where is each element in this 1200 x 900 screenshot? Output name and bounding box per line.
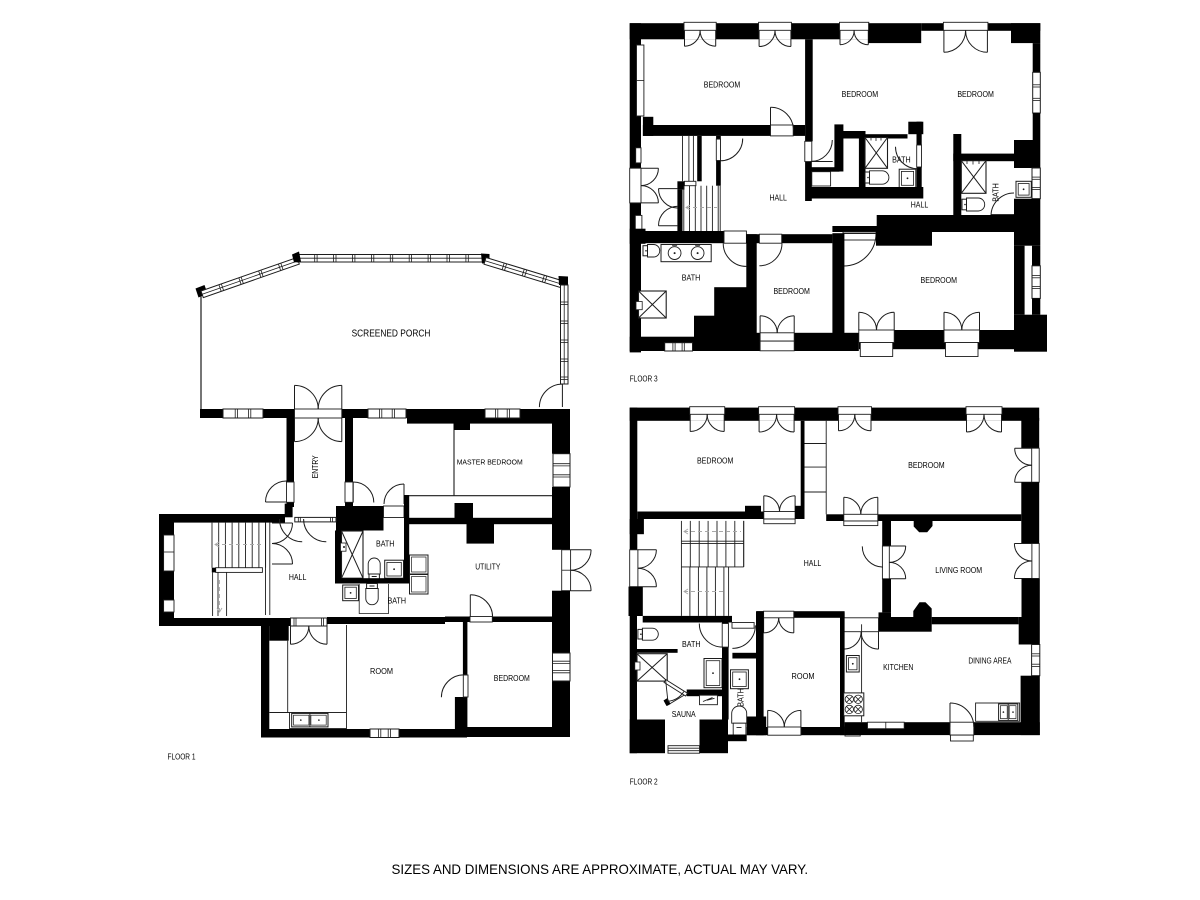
svg-text:ROOM: ROOM xyxy=(792,672,815,681)
svg-text:FLOOR 2: FLOOR 2 xyxy=(630,777,658,787)
svg-text:HALL: HALL xyxy=(804,559,822,568)
svg-text:FLOOR 3: FLOOR 3 xyxy=(630,374,658,384)
svg-text:SCREENED PORCH: SCREENED PORCH xyxy=(352,328,431,339)
svg-text:ROOM: ROOM xyxy=(370,667,393,676)
svg-text:HALL: HALL xyxy=(769,193,787,202)
svg-text:LIVING ROOM: LIVING ROOM xyxy=(935,565,982,575)
svg-text:FLOOR 1: FLOOR 1 xyxy=(168,752,196,762)
svg-text:BEDROOM: BEDROOM xyxy=(494,674,530,683)
svg-text:BEDROOM: BEDROOM xyxy=(908,460,945,470)
svg-text:BATH: BATH xyxy=(376,539,395,548)
svg-text:HALL: HALL xyxy=(289,573,307,582)
svg-text:BEDROOM: BEDROOM xyxy=(697,455,734,465)
svg-text:KITCHEN: KITCHEN xyxy=(883,662,913,672)
svg-text:BEDROOM: BEDROOM xyxy=(921,275,958,285)
svg-text:BATH: BATH xyxy=(682,274,701,283)
svg-text:BATH: BATH xyxy=(388,596,407,605)
svg-text:MASTER BEDROOM: MASTER BEDROOM xyxy=(457,458,523,467)
svg-text:BATH: BATH xyxy=(737,688,746,707)
svg-text:BEDROOM: BEDROOM xyxy=(842,89,879,99)
svg-text:ENTRY: ENTRY xyxy=(311,455,320,479)
svg-text:SIZES AND DIMENSIONS ARE APPRO: SIZES AND DIMENSIONS ARE APPROXIMATE, AC… xyxy=(392,861,809,877)
svg-text:BEDROOM: BEDROOM xyxy=(957,89,994,99)
svg-text:BEDROOM: BEDROOM xyxy=(704,79,741,89)
svg-text:SAUNA: SAUNA xyxy=(672,710,697,719)
svg-text:BEDROOM: BEDROOM xyxy=(773,286,810,296)
svg-text:BATH: BATH xyxy=(892,156,911,165)
svg-text:HALL: HALL xyxy=(911,200,929,209)
svg-text:UTILITY: UTILITY xyxy=(475,562,501,571)
svg-text:BATH: BATH xyxy=(682,640,701,649)
svg-text:DINING AREA: DINING AREA xyxy=(968,656,1011,666)
